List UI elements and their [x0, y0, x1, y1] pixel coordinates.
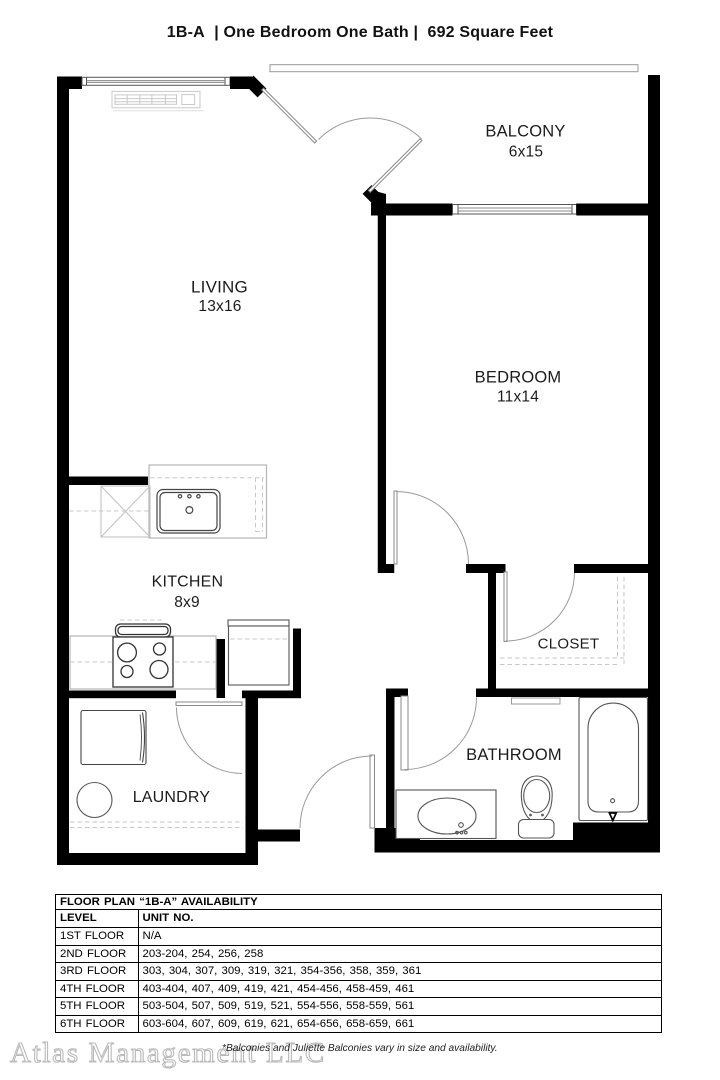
svg-text:13x16: 13x16	[198, 298, 241, 315]
svg-text:8x9: 8x9	[174, 594, 200, 611]
svg-text:BEDROOM: BEDROOM	[475, 369, 562, 387]
svg-text:CLOSET: CLOSET	[538, 636, 600, 653]
svg-text:BATHROOM: BATHROOM	[466, 746, 562, 764]
svg-text:6x15: 6x15	[509, 144, 543, 161]
svg-text:LAUNDRY: LAUNDRY	[133, 789, 211, 806]
svg-text:11x14: 11x14	[497, 389, 539, 406]
svg-text:BALCONY: BALCONY	[485, 123, 565, 141]
svg-text:LIVING: LIVING	[191, 278, 248, 297]
svg-text:KITCHEN: KITCHEN	[152, 574, 224, 591]
